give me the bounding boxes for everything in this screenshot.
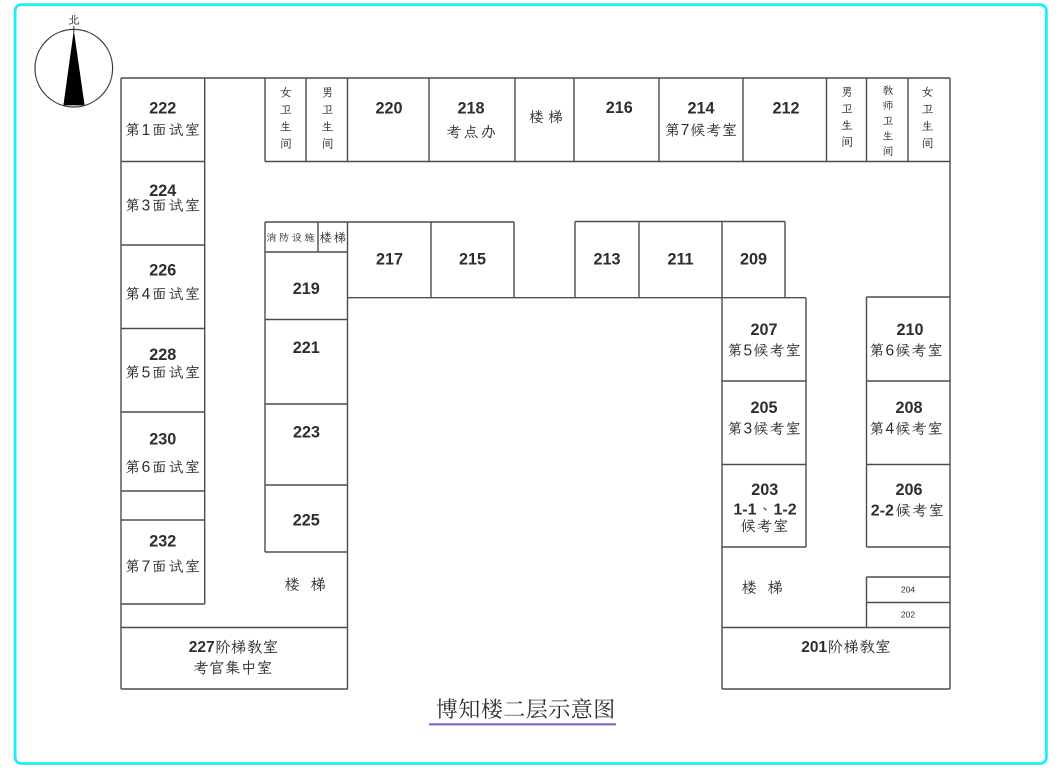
svg-text:202: 202 (901, 610, 915, 620)
svg-text:1: 1 (142, 122, 151, 139)
svg-text:213: 213 (593, 250, 620, 268)
svg-text:204: 204 (901, 584, 915, 594)
svg-text:5: 5 (744, 343, 753, 360)
svg-text:212: 212 (772, 99, 799, 117)
svg-text:221: 221 (293, 339, 320, 357)
svg-text:222: 222 (149, 99, 176, 117)
svg-text:211: 211 (667, 250, 693, 268)
svg-text:225: 225 (293, 512, 320, 530)
svg-text:216: 216 (606, 99, 633, 117)
svg-text:230: 230 (149, 430, 176, 448)
svg-text:207: 207 (750, 321, 777, 339)
svg-text:227: 227 (189, 639, 215, 656)
svg-text:220: 220 (375, 99, 402, 117)
svg-text:206: 206 (895, 481, 922, 499)
svg-text:218: 218 (457, 99, 484, 117)
svg-text:214: 214 (687, 99, 714, 117)
svg-text:1-1: 1-1 (733, 502, 756, 519)
svg-text:224: 224 (149, 182, 176, 200)
svg-text:208: 208 (895, 399, 922, 417)
svg-text:3: 3 (142, 198, 151, 215)
svg-text:232: 232 (149, 532, 176, 550)
svg-text:7: 7 (681, 122, 690, 139)
svg-text:6: 6 (142, 459, 151, 476)
svg-text:223: 223 (293, 423, 320, 441)
svg-text:217: 217 (376, 250, 403, 268)
svg-text:219: 219 (293, 280, 320, 298)
svg-text:7: 7 (142, 559, 151, 576)
svg-text:201: 201 (801, 639, 827, 656)
svg-text:205: 205 (750, 399, 777, 417)
svg-text:203: 203 (751, 481, 778, 499)
svg-text:209: 209 (740, 250, 767, 268)
svg-text:228: 228 (149, 346, 176, 364)
svg-text:4: 4 (142, 286, 151, 303)
svg-text:210: 210 (896, 321, 923, 339)
svg-text:2-2: 2-2 (871, 503, 894, 520)
svg-text:1-2: 1-2 (774, 502, 797, 519)
svg-text:3: 3 (744, 421, 753, 438)
svg-text:226: 226 (149, 261, 176, 279)
svg-text:6: 6 (886, 343, 895, 360)
svg-text:215: 215 (459, 250, 486, 268)
svg-text:4: 4 (886, 421, 895, 438)
svg-text:5: 5 (142, 365, 151, 382)
